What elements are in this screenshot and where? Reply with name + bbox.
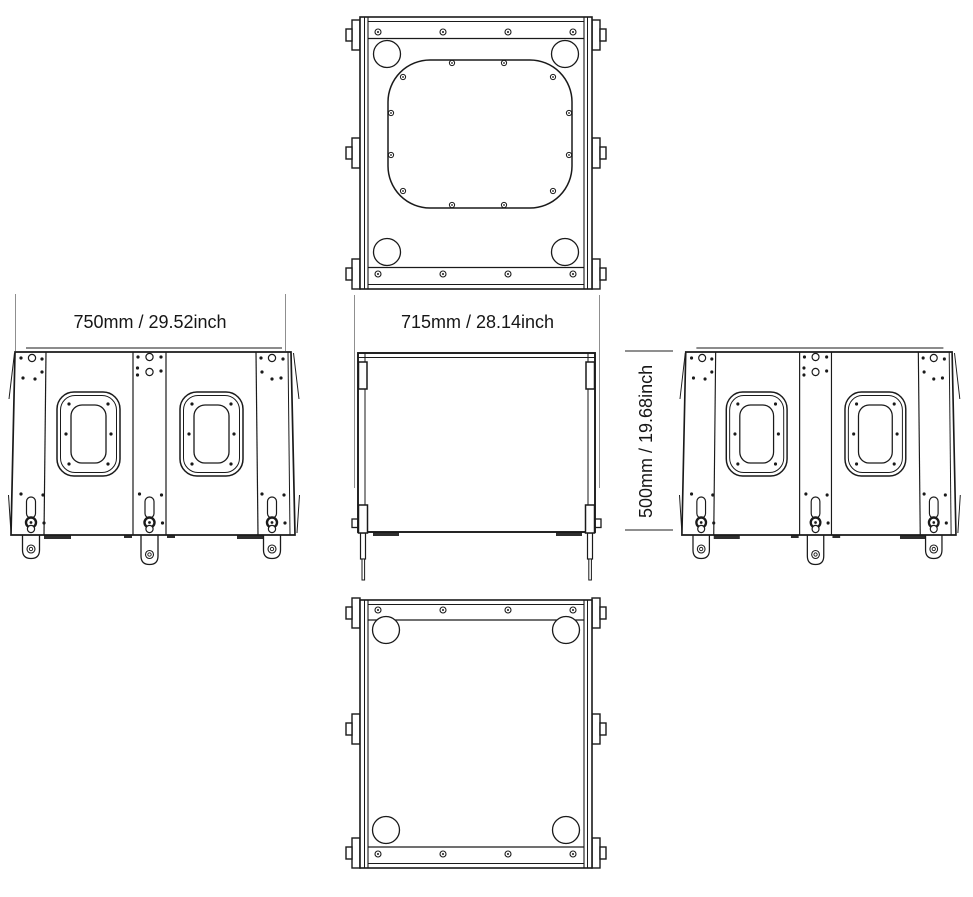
left-side-view-drawing bbox=[8, 345, 300, 570]
dimension-label-height: 500mm / 19.68inch bbox=[634, 353, 658, 529]
top-view-drawing bbox=[338, 14, 614, 294]
dimension-extension-line bbox=[625, 529, 673, 531]
dimension-label-front-width: 715mm / 28.14inch bbox=[352, 312, 603, 333]
dimension-extension-line bbox=[625, 350, 673, 352]
dimension-label-side-width: 750mm / 29.52inch bbox=[8, 312, 292, 333]
front-view-drawing bbox=[346, 348, 608, 588]
right-side-view-drawing bbox=[676, 345, 968, 570]
bottom-view-drawing bbox=[338, 596, 614, 876]
